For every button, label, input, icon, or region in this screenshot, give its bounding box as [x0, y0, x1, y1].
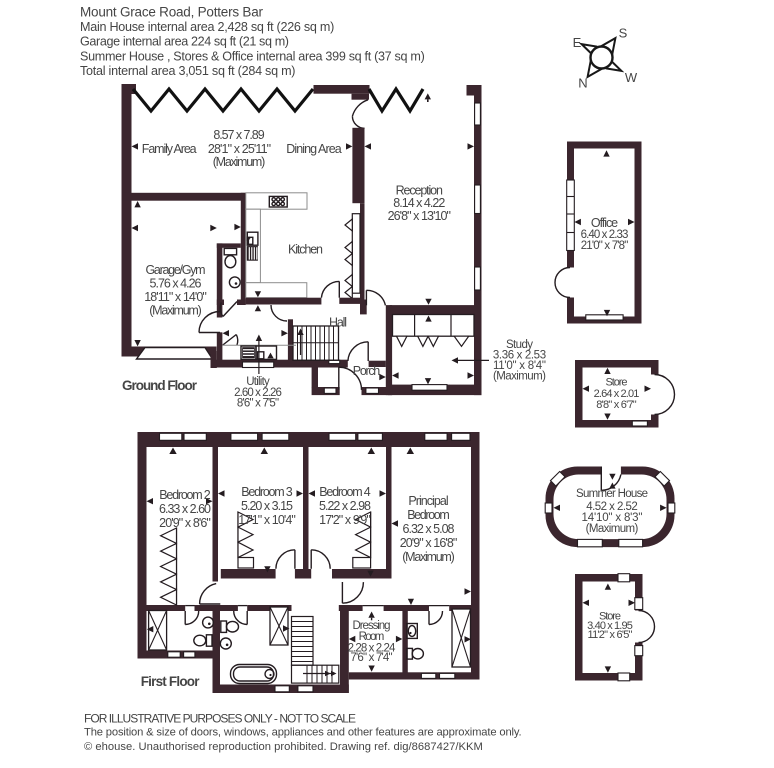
svg-text:20'9" x 16'8": 20'9" x 16'8" — [400, 536, 458, 550]
svg-text:S: S — [619, 26, 628, 41]
svg-text:Garage/Gym: Garage/Gym — [145, 263, 205, 277]
svg-text:28'1" x 25'11": 28'1" x 25'11" — [208, 142, 271, 156]
svg-text:W: W — [625, 70, 638, 85]
svg-text:Total internal area 3,051 sq f: Total internal area 3,051 sq ft (284 sq … — [80, 64, 296, 78]
svg-text:© ehouse. Unauthorised reprodu: © ehouse. Unauthorised reproduction proh… — [84, 741, 483, 753]
svg-text:6.33 x 2.60: 6.33 x 2.60 — [159, 502, 211, 516]
svg-text:Room: Room — [359, 631, 385, 643]
svg-text:Summer House: Summer House — [576, 488, 648, 500]
svg-text:6.32 x 5.08: 6.32 x 5.08 — [403, 522, 455, 536]
svg-text:E: E — [573, 35, 582, 50]
svg-text:Bedroom 2: Bedroom 2 — [159, 488, 210, 502]
svg-text:Bedroom: Bedroom — [407, 508, 450, 522]
svg-text:Store: Store — [605, 377, 627, 389]
svg-text:Mount Grace Road, Potters Bar: Mount Grace Road, Potters Bar — [80, 4, 264, 19]
svg-text:Summer House , Stores & Office: Summer House , Stores & Office internal … — [80, 49, 425, 63]
svg-text:5.22 x 2.98: 5.22 x 2.98 — [319, 499, 371, 513]
svg-text:11'2" x 6'5": 11'2" x 6'5" — [588, 629, 633, 641]
svg-text:FOR ILLUSTRATIVE PURPOSES ONLY: FOR ILLUSTRATIVE PURPOSES ONLY - NOT TO … — [84, 712, 356, 726]
svg-text:17'2" x 9'9": 17'2" x 9'9" — [319, 513, 371, 527]
svg-text:7'6" x 7'4": 7'6" x 7'4" — [350, 652, 392, 664]
svg-text:First Floor: First Floor — [141, 674, 201, 689]
svg-text:8'6" x 7'5": 8'6" x 7'5" — [237, 398, 279, 410]
svg-text:Main House internal area 2,428: Main House internal area 2,428 sq ft (22… — [80, 20, 334, 34]
svg-text:18'11" x 14'0": 18'11" x 14'0" — [144, 290, 207, 304]
svg-text:Garage internal area 224 sq ft: Garage internal area 224 sq ft (21 sq m) — [80, 35, 289, 49]
svg-text:Porch: Porch — [353, 364, 380, 378]
svg-text:5.20 x 3.15: 5.20 x 3.15 — [241, 499, 293, 513]
svg-text:The position & size of doors,: The position & size of doors, windows, a… — [84, 727, 522, 739]
svg-text:Ground Floor: Ground Floor — [122, 378, 198, 393]
svg-text:26'8" x 13'10": 26'8" x 13'10" — [388, 209, 451, 223]
svg-text:8'8" x 6'7": 8'8" x 6'7" — [596, 399, 636, 411]
svg-text:Bedroom 4: Bedroom 4 — [319, 485, 370, 499]
svg-text:Dining Area: Dining Area — [286, 142, 341, 156]
svg-text:Principal: Principal — [408, 494, 448, 508]
svg-text:Office: Office — [591, 216, 618, 230]
svg-text:(Maximum): (Maximum) — [493, 371, 546, 383]
svg-text:17'1" x 10'4": 17'1" x 10'4" — [238, 513, 296, 527]
svg-text:Family Area: Family Area — [142, 142, 197, 156]
svg-text:8.14 x 4.22: 8.14 x 4.22 — [393, 196, 445, 210]
svg-text:N: N — [578, 76, 587, 91]
svg-text:(Maximum): (Maximum) — [402, 550, 455, 564]
svg-text:Bedroom 3: Bedroom 3 — [241, 485, 292, 499]
svg-text:21'0" x 7'8": 21'0" x 7'8" — [581, 240, 629, 252]
svg-text:(Maximum): (Maximum) — [586, 523, 639, 535]
svg-text:(Maximum): (Maximum) — [213, 155, 266, 169]
svg-text:Kitchen: Kitchen — [288, 243, 323, 257]
svg-text:(Maximum): (Maximum) — [149, 304, 202, 318]
svg-text:20'9" x 8'6": 20'9" x 8'6" — [159, 516, 211, 530]
svg-text:5.76 x 4.26: 5.76 x 4.26 — [150, 277, 202, 291]
svg-text:8.57 x 7.89: 8.57 x 7.89 — [213, 128, 264, 142]
svg-text:Hall: Hall — [329, 316, 347, 330]
